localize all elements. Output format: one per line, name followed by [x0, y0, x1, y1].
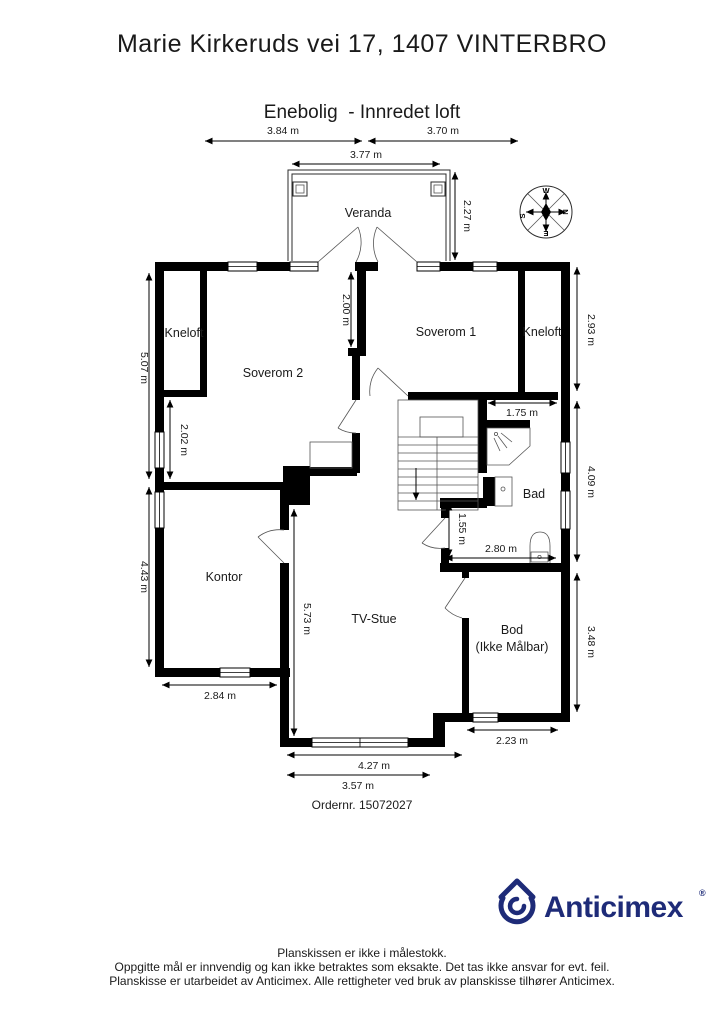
dim-kontor-bottom: 2.84 m [162, 685, 277, 702]
svg-text:5.73 m: 5.73 m [301, 603, 313, 635]
veranda-door-left [318, 227, 361, 262]
window [155, 432, 164, 468]
room-label-bod: Bod [501, 623, 523, 637]
dim-bad-top: 1.75 m [488, 403, 557, 419]
compass-e: E [543, 229, 548, 238]
dim-bod-bottom: 2.23 m [467, 730, 558, 747]
window [561, 491, 570, 529]
window [290, 262, 318, 271]
room-label-veranda: Veranda [345, 206, 392, 220]
footer-line-3: Planskisse er utarbeidet av Anticimex. A… [0, 974, 724, 988]
registered-mark: ® [699, 888, 706, 898]
floor-plan-drawing: Veranda Kneloft Soverom 2 Soverom 1 Knel… [0, 0, 724, 1024]
svg-text:4.27 m: 4.27 m [358, 760, 390, 772]
window [473, 262, 497, 271]
footer-disclaimer: Planskissen er ikke i målestokk. Oppgitt… [0, 946, 724, 988]
compass-w: W [542, 186, 550, 195]
svg-text:2.84 m: 2.84 m [204, 690, 236, 702]
bod-door [445, 578, 465, 618]
footer-line-2: Oppgitte mål er innvendig og kan ikke be… [0, 960, 724, 974]
compass-s: S [518, 213, 527, 218]
dim-wall-soverom: 2.00 m [340, 272, 352, 347]
room-label-tvstue: TV-Stue [351, 612, 396, 626]
svg-text:3.57 m: 3.57 m [342, 780, 374, 792]
svg-text:3.48 m: 3.48 m [585, 626, 597, 658]
closet [310, 442, 352, 468]
window [417, 262, 440, 271]
hall-door [338, 400, 356, 433]
dim-right-upper: 2.93 m [577, 267, 597, 391]
dim-right-mid: 4.09 m [577, 401, 597, 562]
svg-text:5.07 m: 5.07 m [138, 352, 150, 384]
dim-top-right: 3.70 m [368, 125, 518, 141]
svg-text:2.23 m: 2.23 m [496, 735, 528, 747]
veranda-door-right [373, 227, 417, 262]
svg-text:1.55 m: 1.55 m [456, 513, 468, 545]
anticimex-wordmark: Anticimex [544, 891, 684, 924]
svg-text:2.80 m: 2.80 m [485, 543, 517, 555]
soverom1-door [370, 368, 408, 396]
window [473, 713, 498, 722]
dim-left-lower: 4.43 m [138, 487, 150, 667]
dim-tv-bottom2: 3.57 m [287, 775, 430, 792]
svg-text:3.84 m: 3.84 m [267, 125, 299, 137]
veranda-post-left [293, 182, 307, 196]
svg-text:3.70 m: 3.70 m [427, 125, 459, 137]
svg-text:2.00 m: 2.00 m [340, 294, 352, 326]
dim-tv-bottom: 4.27 m [287, 755, 462, 772]
svg-text:4.43 m: 4.43 m [138, 561, 150, 593]
window [220, 668, 250, 677]
room-label-kontor: Kontor [206, 570, 243, 584]
order-number: Ordernr. 15072027 [0, 798, 724, 812]
svg-text:2.27 m: 2.27 m [461, 200, 473, 232]
dim-left-upper: 5.07 m [138, 273, 150, 479]
shower [487, 428, 530, 465]
window [155, 492, 164, 528]
compass-n: N [561, 209, 570, 214]
compass-rose: W N E S [518, 186, 572, 238]
room-label-soverom2: Soverom 2 [243, 366, 303, 380]
window [312, 738, 408, 747]
room-label-kneloft-right: Kneloft [523, 325, 562, 339]
anticimex-logo: Anticimex ® [501, 881, 706, 924]
room-label-bod-note: (Ikke Målbar) [476, 640, 549, 654]
anticimex-logo-icon [501, 881, 533, 922]
dim-veranda-height: 2.27 m [455, 172, 473, 260]
window [561, 442, 570, 473]
dim-right-lower: 3.48 m [577, 573, 597, 712]
svg-text:2.02 m: 2.02 m [178, 424, 190, 456]
svg-text:1.75 m: 1.75 m [506, 407, 538, 419]
bad-door [422, 518, 445, 548]
window [228, 262, 257, 271]
walls [155, 262, 570, 747]
svg-text:3.77 m: 3.77 m [350, 149, 382, 161]
dim-top-left: 3.84 m [205, 125, 362, 141]
dim-kneloft-gap: 2.02 m [170, 400, 190, 479]
svg-text:2.93 m: 2.93 m [585, 314, 597, 346]
room-label-kneloft-left: Kneloft [165, 326, 204, 340]
kontor-door [258, 530, 284, 563]
dim-bad-left: 1.55 m [449, 503, 468, 557]
veranda-post-right [431, 182, 445, 196]
floorplan-page: Marie Kirkeruds vei 17, 1407 VINTERBRO E… [0, 0, 724, 1024]
svg-text:4.09 m: 4.09 m [585, 466, 597, 498]
chimney [283, 466, 310, 505]
footer-line-1: Planskissen er ikke i målestokk. [0, 946, 724, 960]
dim-tv-left: 5.73 m [294, 509, 313, 736]
dim-veranda-width: 3.77 m [292, 149, 440, 164]
room-label-bad: Bad [523, 487, 545, 501]
room-label-soverom1: Soverom 1 [416, 325, 476, 339]
sink [495, 477, 512, 506]
staircase [398, 400, 478, 510]
